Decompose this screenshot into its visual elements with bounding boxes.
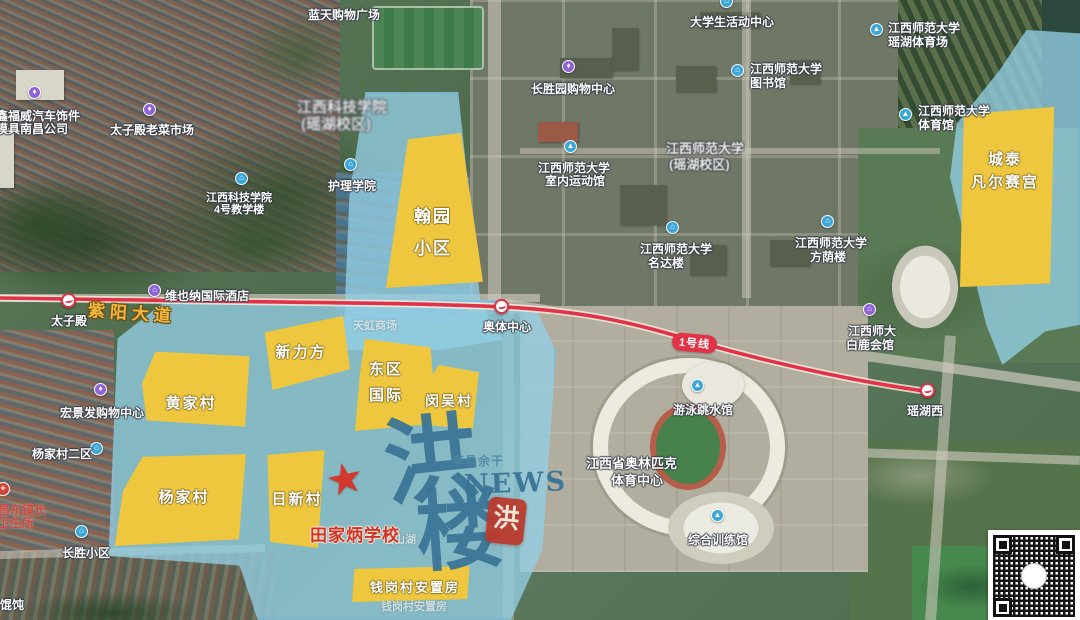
faint-label-qiangang_faint: 钱岗村安置房 (381, 598, 447, 614)
faint-map-labels: 天虹商场瑶山湖钱岗村安置房 (0, 0, 1080, 620)
school-annotation: 田家炳学校 (310, 521, 400, 546)
qr-center-logo (1021, 563, 1047, 589)
faint-label-tianhong: 天虹商场 (353, 317, 397, 333)
map-canvas[interactable]: 翰园小区新力方东区国际闵吴村黄家村杨家村日新村城泰凡尔赛宫钱岗村安置房 1号线 … (0, 0, 1080, 620)
watermark-subtitle: 南昌余干 (452, 452, 504, 469)
wonton-shop-label: 味馄饨 (0, 596, 24, 613)
health-center-label-line2: 卫生所 (0, 514, 34, 531)
watermark-seal: 洪 (485, 496, 528, 546)
qr-finder-tl (993, 535, 1012, 554)
qr-finder-bl (993, 598, 1012, 617)
qr-code (988, 530, 1080, 620)
watermark-seal-char: 洪 (492, 505, 521, 534)
qr-finder-tr (1056, 535, 1075, 554)
watermark-news: NEWS (463, 466, 567, 501)
star-marker-icon: ★ (322, 455, 368, 504)
